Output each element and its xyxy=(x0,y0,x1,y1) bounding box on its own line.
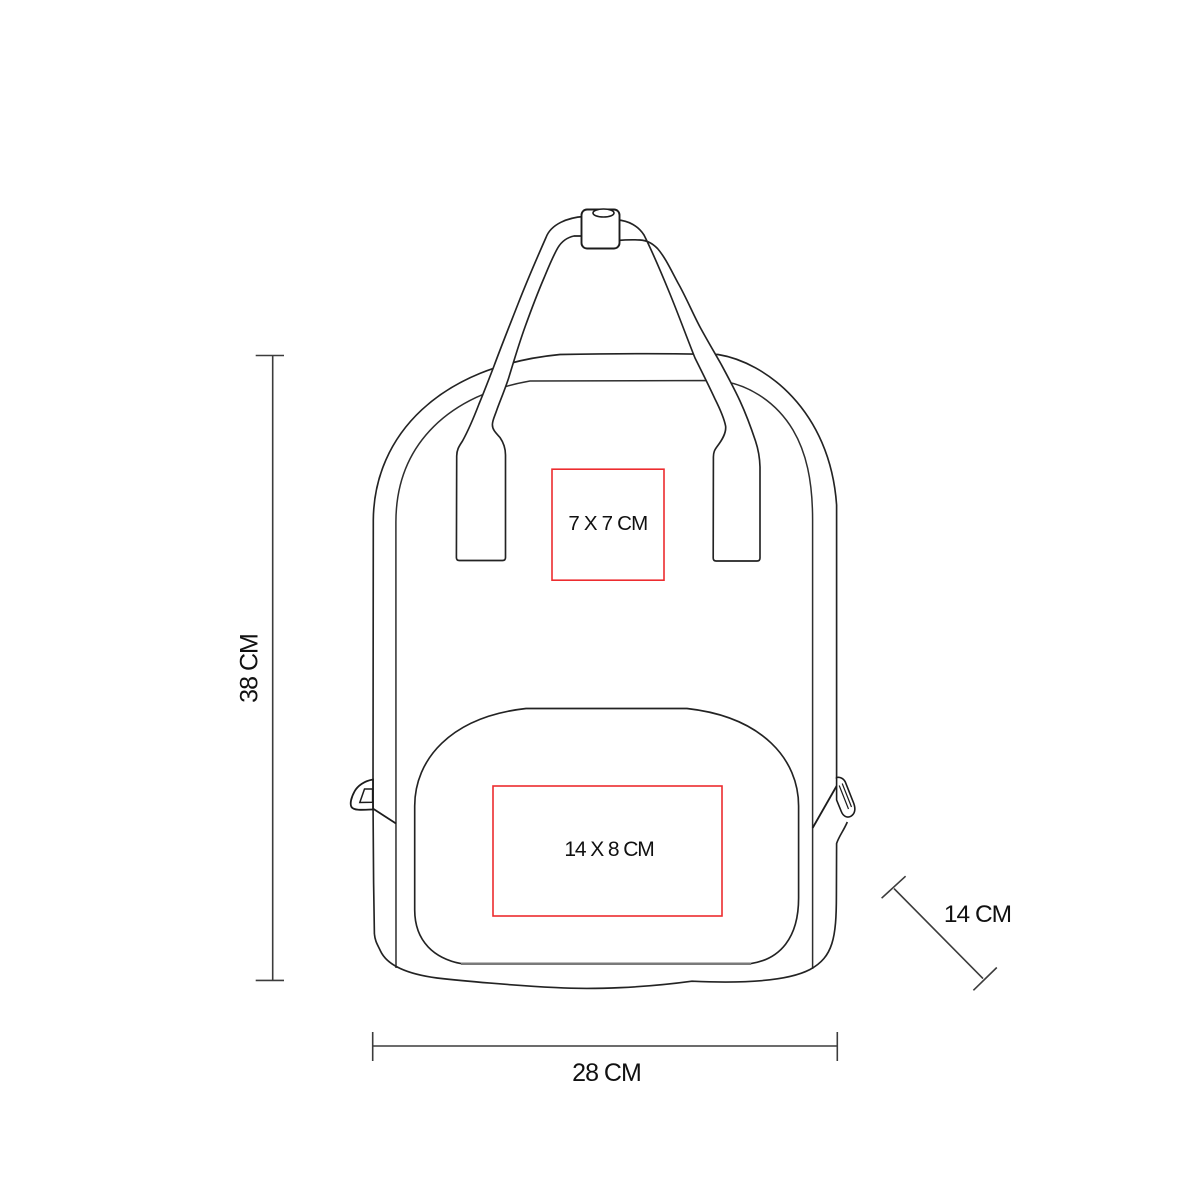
svg-text:28 CM: 28 CM xyxy=(572,1059,641,1087)
svg-text:38 CM: 38 CM xyxy=(236,634,264,703)
svg-text:14 CM: 14 CM xyxy=(944,901,1011,928)
svg-text:14 X 8 CM: 14 X 8 CM xyxy=(564,838,653,861)
svg-text:7 X 7 CM: 7 X 7 CM xyxy=(568,512,647,535)
